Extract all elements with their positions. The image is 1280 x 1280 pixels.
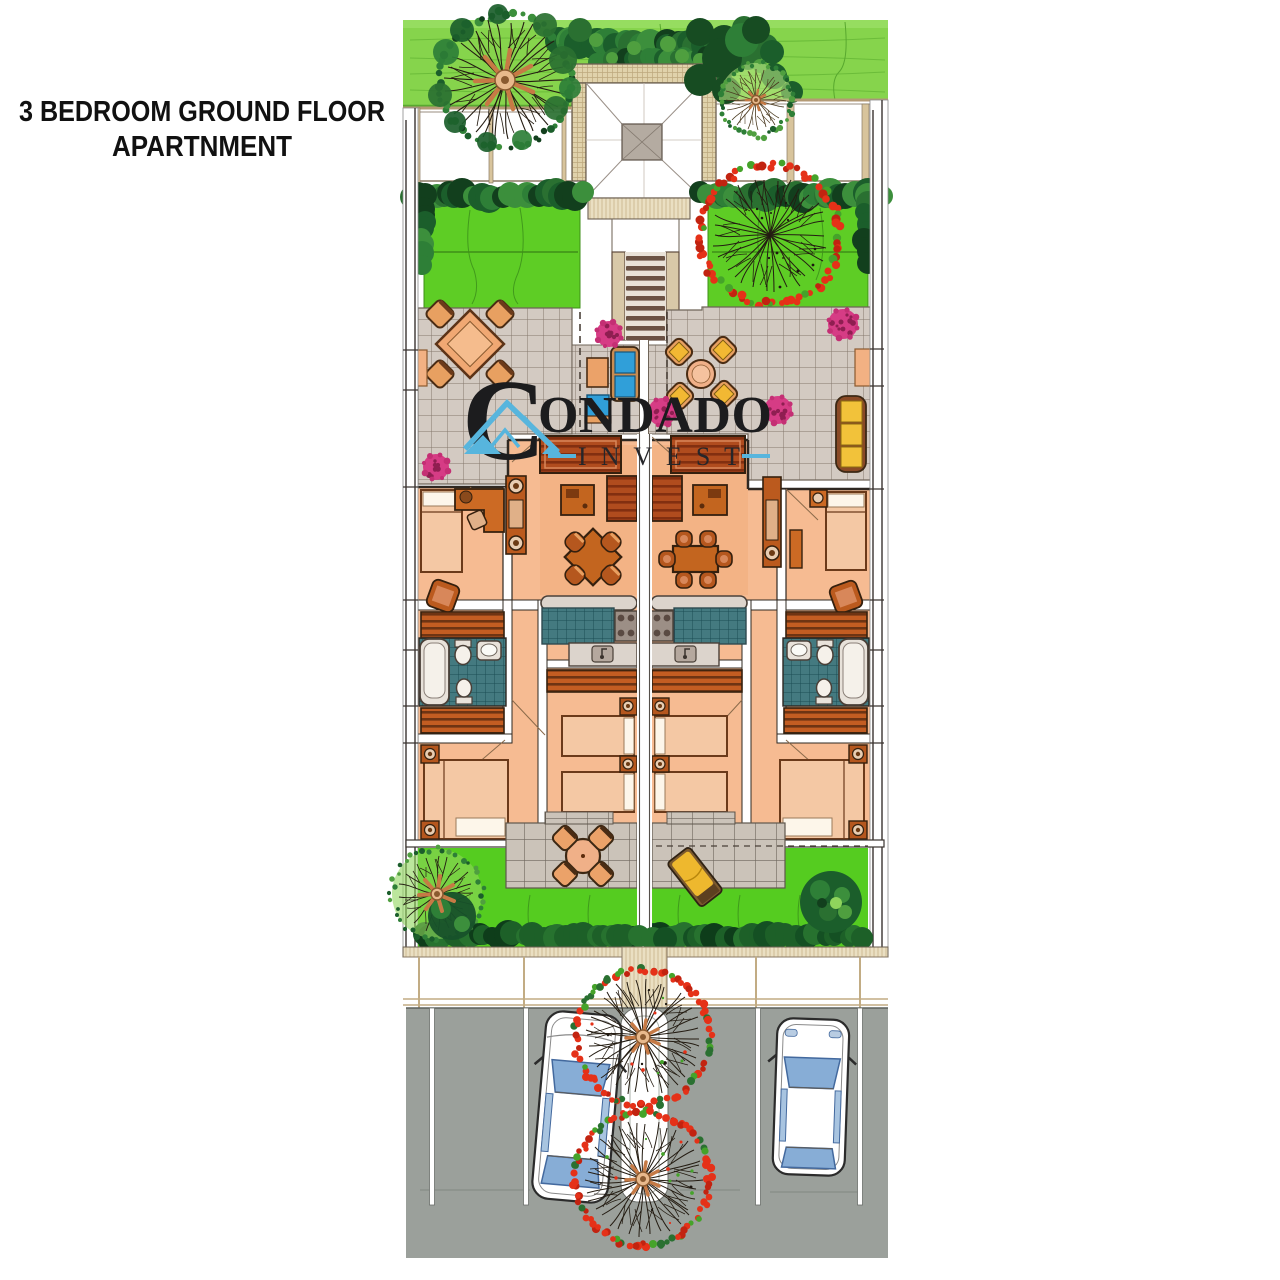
svg-text:3 BEDROOM GROUND FLOOR: 3 BEDROOM GROUND FLOOR	[19, 96, 385, 128]
svg-text:C: C	[462, 357, 546, 485]
svg-text:APARTNMENT: APARTNMENT	[112, 131, 292, 163]
svg-text:ONDADO: ONDADO	[538, 387, 772, 444]
svg-text:I N V E S T: I N V E S T	[578, 442, 740, 471]
